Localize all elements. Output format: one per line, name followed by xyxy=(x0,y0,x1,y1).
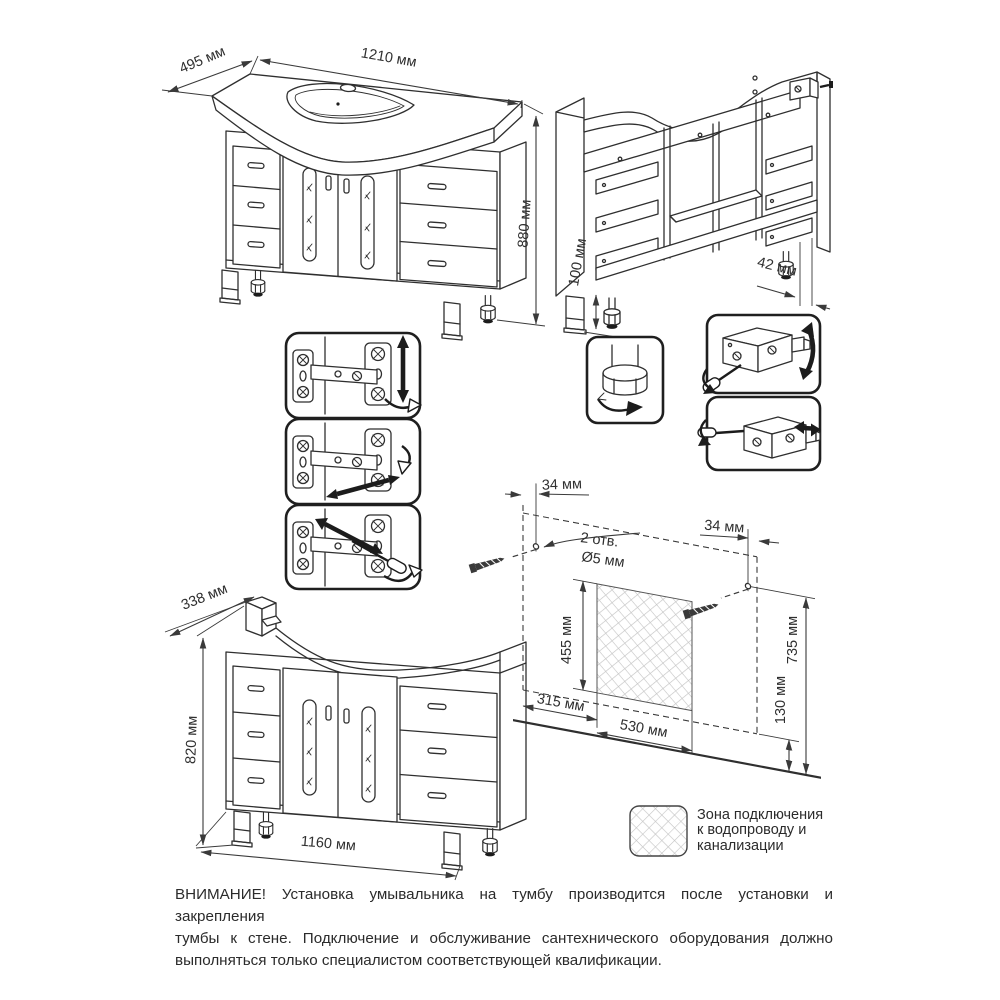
dim-zone-width-label: 530 мм xyxy=(619,717,669,741)
dim-width-sink-label: 1210 мм xyxy=(360,45,418,71)
hinge-adjustment-panels xyxy=(286,333,422,589)
mount-hole-left xyxy=(533,543,538,549)
warning-line: тумбы к стене. Подключение и обслуживани… xyxy=(175,928,833,950)
holes-count-label: 2 отв. xyxy=(580,530,620,551)
wall-bracket-icon xyxy=(790,78,833,100)
adjustable-foot-icon xyxy=(259,812,273,838)
dim-depth-sink-label: 495 мм xyxy=(177,44,228,78)
legend-line: канализации xyxy=(697,839,917,854)
dim-height-cabinet-label: 820 мм xyxy=(183,716,201,765)
dim-height-sink-label: 880 мм xyxy=(515,199,534,248)
adjustable-foot-icon xyxy=(604,298,620,329)
dim-depth-cabinet-label: 338 мм xyxy=(179,581,230,614)
adjustable-foot-icon xyxy=(483,829,497,857)
dim-zone-height-label: 455 мм xyxy=(559,616,575,664)
dim-width-cabinet-label: 1160 мм xyxy=(300,834,356,855)
view-vanity-front-with-sink: 495 мм 1210 мм 880 мм xyxy=(162,44,545,340)
plumbing-zone xyxy=(597,584,692,711)
faucet-hole xyxy=(340,84,355,92)
legend-line: Зона подключения xyxy=(697,808,917,823)
view-cabinet-front: 338 мм 820 мм 1160 мм xyxy=(165,581,526,880)
holes-diameter-label: Ø5 мм xyxy=(580,549,625,571)
adjustable-foot-icon xyxy=(251,270,265,296)
dim-zone-left-offset-label: 315 мм xyxy=(536,691,586,715)
drain-hole xyxy=(336,102,339,105)
page: 495 мм 1210 мм 880 мм xyxy=(0,0,1000,1000)
legend-line: к водопроводу и xyxy=(697,823,917,838)
warning-note: ВНИМАНИЕ! Установка умывальника на тумбу… xyxy=(175,884,833,972)
adjustable-foot-icon xyxy=(481,296,495,324)
drawer-adjustment-panels xyxy=(698,315,821,470)
screw-icon xyxy=(469,554,506,573)
legend: Зона подключения к водопроводу и канализ… xyxy=(697,808,917,854)
dim-hole-offset-left-label: 34 мм xyxy=(542,476,583,493)
dim-hole-offset-right-label: 34 мм xyxy=(704,518,745,537)
dim-bottom-clearance-label: 130 мм xyxy=(773,676,789,724)
dim-holes-height-label: 735 мм xyxy=(785,616,801,664)
dim-wall-gap-label: 42 мм xyxy=(756,255,799,280)
warning-line: ВНИМАНИЕ! Установка умывальника на тумбу… xyxy=(175,884,833,928)
foot-adjustment-panel xyxy=(587,337,663,423)
warning-line: выполняться только специалистом соответс… xyxy=(175,950,833,972)
mount-hole-right xyxy=(745,583,750,589)
view-cabinet-rear: 100 мм 42 мм xyxy=(556,72,833,337)
legend-hatch-swatch xyxy=(630,806,687,856)
